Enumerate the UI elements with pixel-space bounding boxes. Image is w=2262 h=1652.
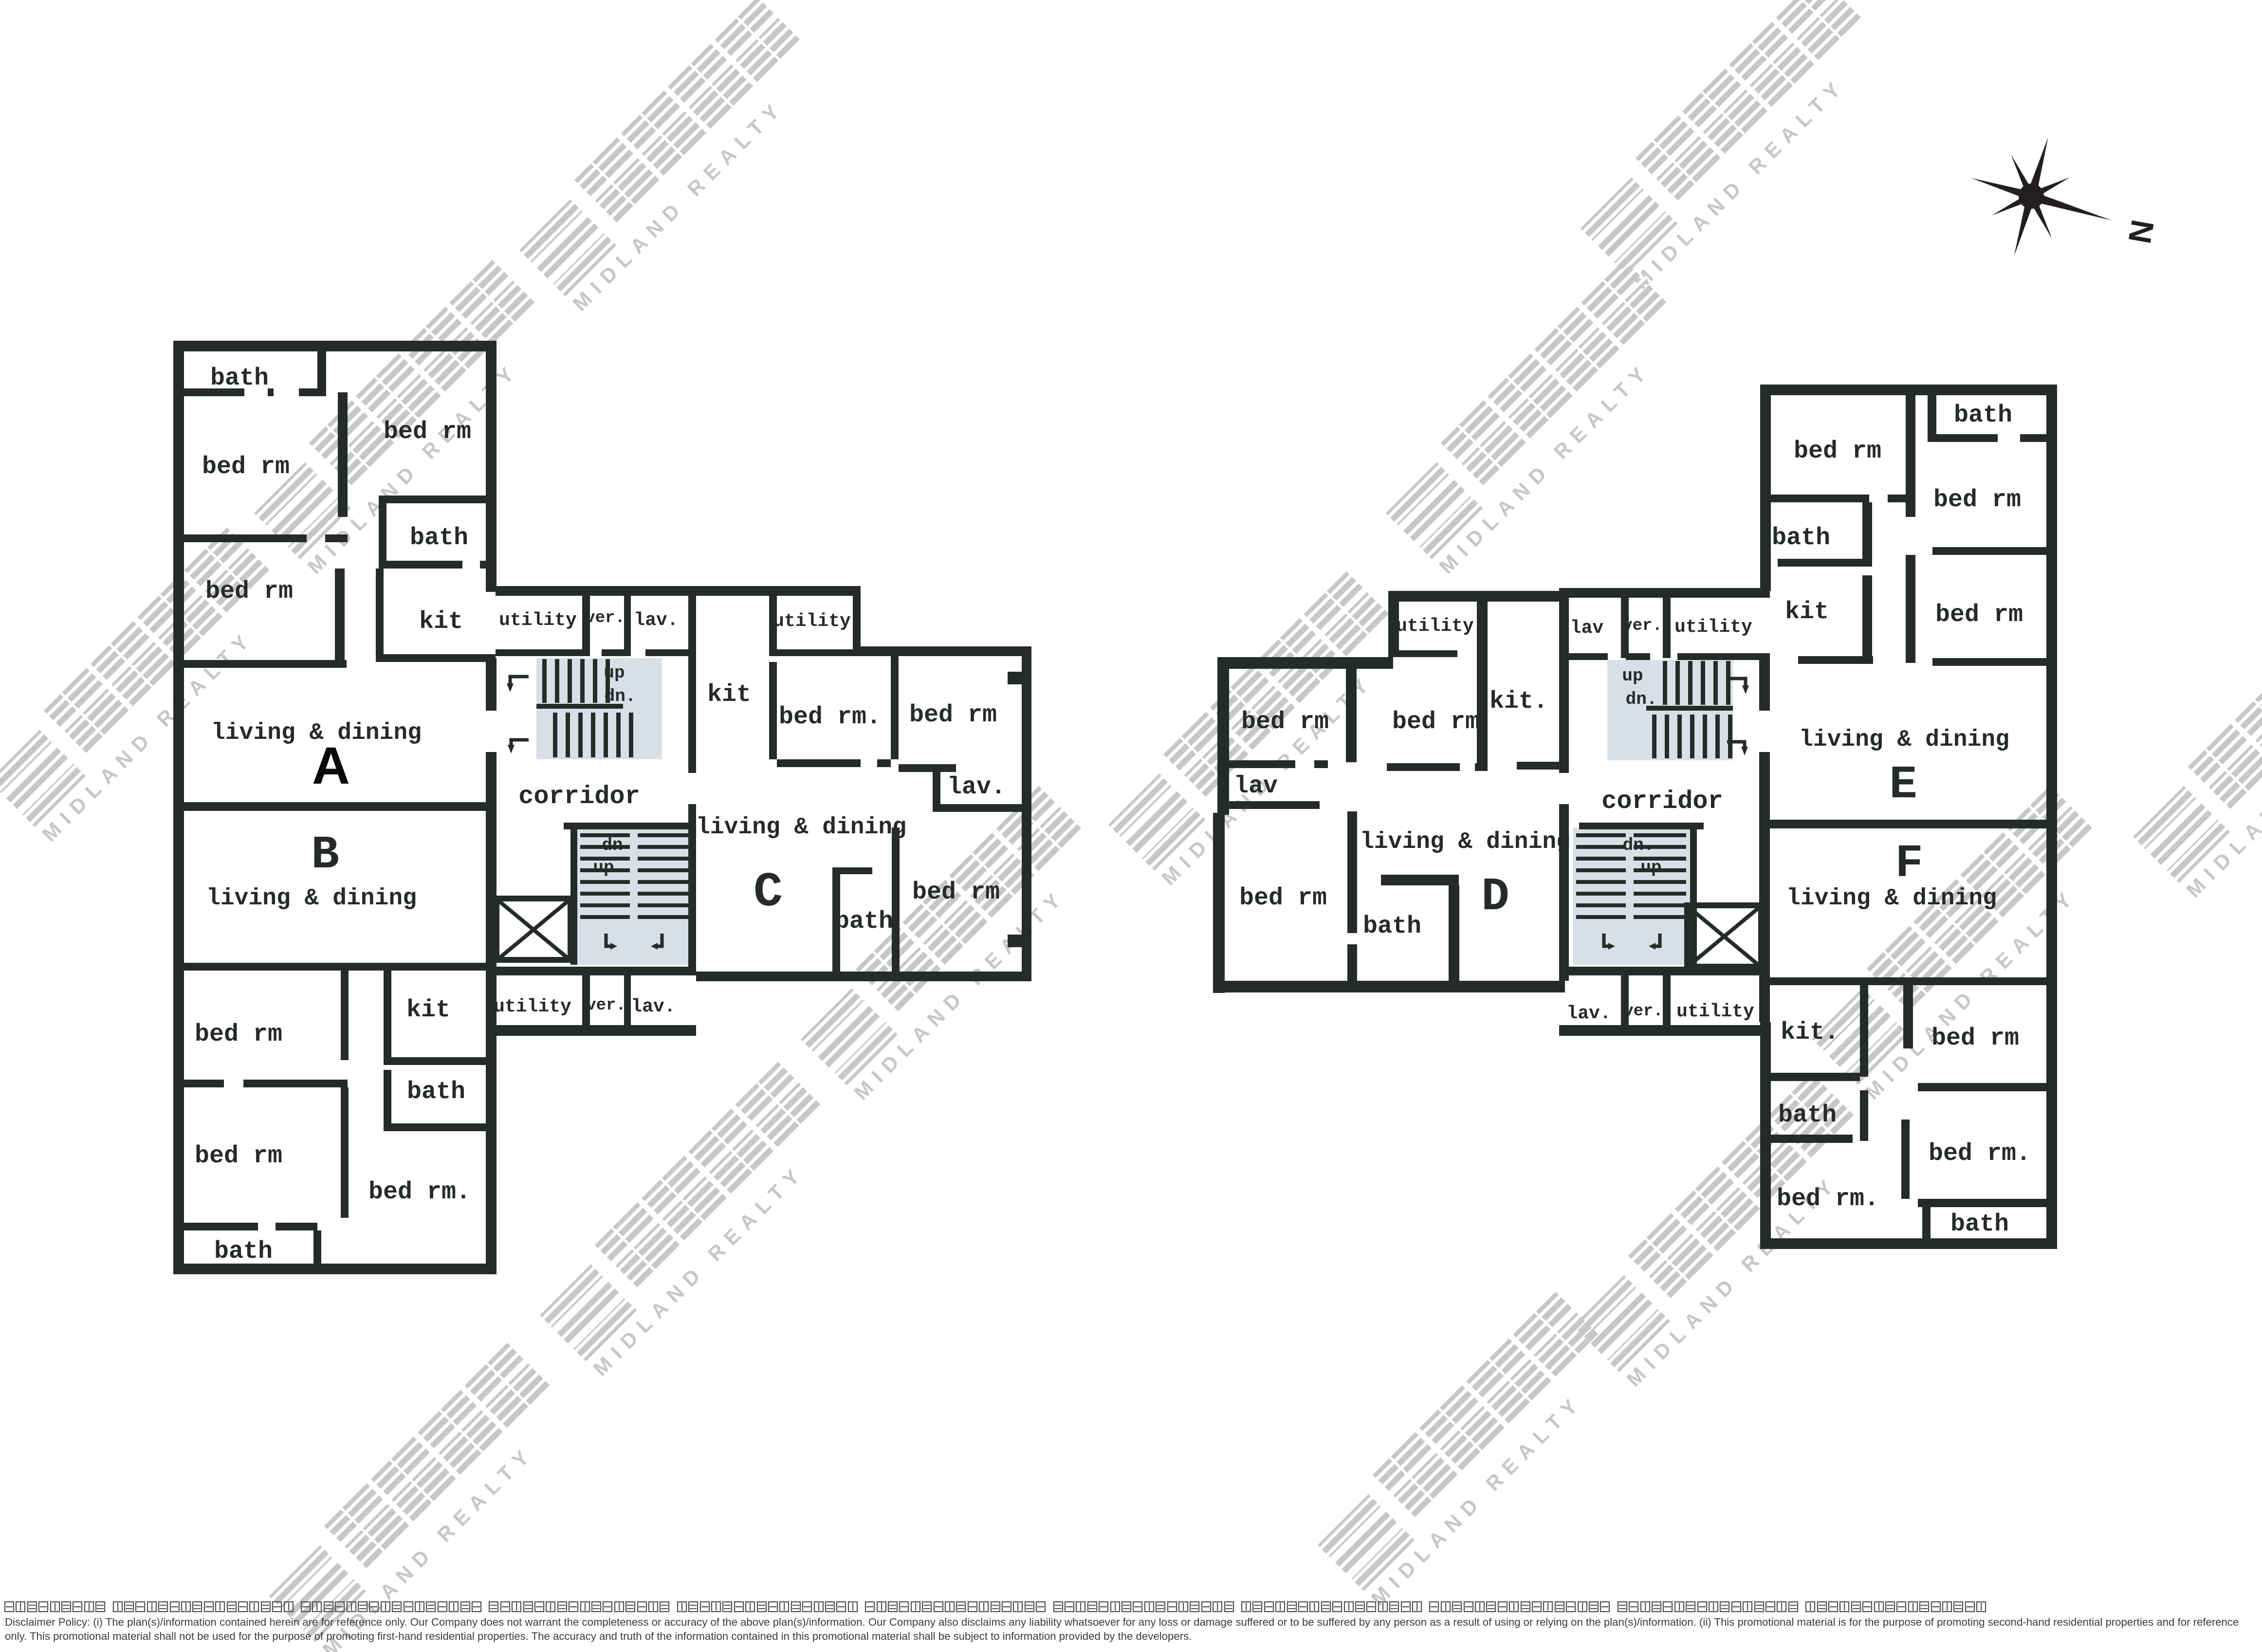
svg-text:bed rm: bed rm [1239,884,1327,912]
svg-text:lav.: lav. [947,773,1006,801]
svg-text:lav.: lav. [1566,1003,1611,1024]
svg-text:kit.: kit. [1490,688,1548,716]
svg-text:B: B [311,828,339,881]
svg-text:bed rm.: bed rm. [1929,1140,2031,1168]
svg-text:bed rm.: bed rm. [1777,1185,1879,1213]
svg-text:lav: lav [1234,772,1278,800]
svg-text:utility: utility [499,610,577,631]
svg-text:ver.: ver. [1622,617,1662,635]
svg-text:bed rm: bed rm [1392,708,1480,736]
svg-text:living & dining: living & dining [1799,727,2009,753]
svg-text:bed rm: bed rm [1794,438,1881,465]
svg-text:bed rm: bed rm [205,578,293,606]
svg-text:bed rm.: bed rm. [779,703,881,731]
svg-text:kit.: kit. [1781,1019,1839,1046]
svg-text:bed rm: bed rm [202,453,290,481]
svg-text:ver.: ver. [1623,1002,1663,1021]
svg-text:kit: kit [1785,598,1829,626]
svg-text:dn: dn [602,835,623,855]
svg-text:kit: kit [707,681,751,709]
svg-text:living & dining: living & dining [1360,829,1570,855]
svg-text:lav.: lav. [634,610,678,631]
svg-text:kit: kit [406,996,450,1024]
svg-text:corridor: corridor [1601,787,1723,816]
svg-text:A: A [312,736,350,795]
svg-text:bath: bath [1772,524,1830,552]
svg-text:bed rm: bed rm [195,1021,282,1048]
svg-text:bed rm: bed rm [1241,708,1329,736]
svg-text:corridor: corridor [518,782,640,811]
svg-text:bath: bath [1778,1101,1837,1129]
svg-text:lav: lav [1570,618,1604,639]
svg-text:living & dining: living & dining [696,814,906,841]
svg-text:bath: bath [1950,1211,2009,1238]
svg-text:bath: bath [407,1078,465,1106]
svg-text:bed rm: bed rm [1933,486,2021,514]
svg-text:kit: kit [419,608,463,636]
svg-text:bed rm: bed rm [912,879,1000,906]
svg-text:up: up [1622,666,1643,686]
svg-text:bath: bath [835,908,893,936]
svg-text:C: C [754,865,783,920]
svg-text:dn.: dn. [1623,835,1655,855]
svg-text:living & dining: living & dining [1786,885,1997,912]
svg-text:utility: utility [1674,617,1752,638]
svg-text:bath: bath [1954,402,2012,429]
svg-text:up: up [593,858,614,878]
svg-text:up: up [1640,858,1661,878]
svg-text:utility: utility [494,996,571,1017]
svg-text:utility: utility [773,611,851,632]
svg-text:bath: bath [214,1238,273,1266]
svg-text:only. This promotional materia: only. This promotional material shall no… [5,1630,1192,1642]
svg-text:lav.: lav. [631,996,675,1017]
svg-text:bed rm: bed rm [384,418,471,446]
svg-text:bed rm: bed rm [1935,601,2023,629]
svg-text:dn.: dn. [605,686,636,706]
svg-text:ver.: ver. [586,996,626,1015]
svg-text:up: up [604,663,625,683]
svg-text:dn.: dn. [1626,689,1657,709]
svg-text:bed rm: bed rm [195,1142,282,1170]
svg-text:ver.: ver. [585,609,625,627]
svg-text:bath: bath [410,524,468,552]
svg-text:bath: bath [1363,913,1421,940]
svg-text:bed rm: bed rm [1931,1025,2019,1052]
svg-text:Disclaimer Policy: (i) The pla: Disclaimer Policy: (i) The plan(s)/infor… [5,1616,2239,1628]
svg-text:bed rm: bed rm [909,701,997,729]
svg-text:living & dining: living & dining [206,885,417,912]
svg-text:E: E [1889,758,1917,811]
svg-text:bed rm.: bed rm. [368,1178,471,1206]
svg-text:utility: utility [1396,616,1474,637]
svg-text:bath: bath [210,365,269,392]
svg-text:D: D [1481,870,1509,923]
svg-text:utility: utility [1676,1001,1754,1022]
svg-text:F: F [1895,837,1923,890]
